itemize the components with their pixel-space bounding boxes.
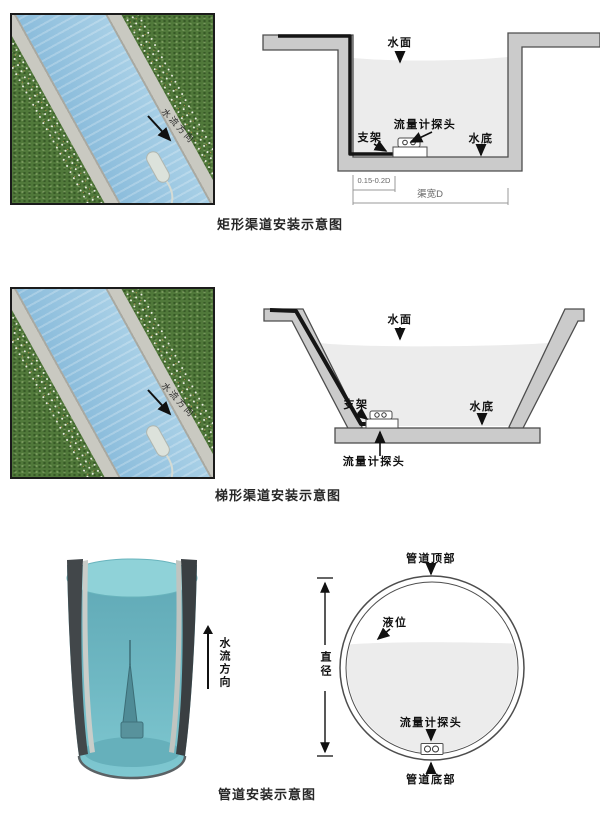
sensor-in-water bbox=[144, 149, 172, 203]
caption-pipe: 管道安装示意图 bbox=[218, 784, 316, 803]
diagram-pipe-section: 管道顶部 液位 流量计探头 管道底部 bbox=[300, 545, 560, 790]
diameter-label: 直径 bbox=[317, 651, 333, 679]
diagram-trap-channel: 水面 支架 水底 流量计探头 bbox=[258, 295, 600, 475]
page: 水流方向 0.15-0.2D 渠宽D 水面 流量计探头 bbox=[0, 0, 600, 819]
pipe-bottom-label: 管道底部 bbox=[406, 772, 456, 786]
caption-trap-channel: 梯形渠道安装示意图 bbox=[215, 485, 341, 504]
flow-direction-label: 水流方向 bbox=[160, 106, 198, 146]
sensor-in-water bbox=[144, 423, 172, 477]
flow-direction-label: 水流方向 bbox=[216, 637, 232, 689]
flow-direction-arrow bbox=[207, 629, 209, 689]
photo-rect-channel: 水流方向 bbox=[10, 13, 215, 205]
probe-label: 流量计探头 bbox=[400, 715, 463, 729]
water-bottom-label: 水底 bbox=[470, 399, 495, 413]
photo-annotations: 水流方向 bbox=[12, 289, 213, 477]
probe-assembly bbox=[421, 744, 443, 755]
photo-annotations: 水流方向 bbox=[12, 15, 213, 203]
bracket-label: 支架 bbox=[343, 397, 369, 411]
diagram-rect-channel: 0.15-0.2D 渠宽D 水面 流量计探头 支架 水底 bbox=[258, 25, 600, 210]
pipe-floor bbox=[84, 737, 180, 767]
pipe-top-label: 管道顶部 bbox=[406, 551, 456, 565]
water-area bbox=[340, 642, 524, 757]
flow-direction-label: 水流方向 bbox=[160, 380, 198, 420]
water-surface-label: 水面 bbox=[388, 35, 413, 49]
caption-rect-channel: 矩形渠道安装示意图 bbox=[217, 214, 343, 233]
photo-trap-channel: 水流方向 bbox=[10, 287, 215, 479]
water-surface-label: 水面 bbox=[388, 312, 413, 326]
water-bottom-label: 水底 bbox=[469, 131, 494, 145]
photo-pipe-3d: 水流方向 bbox=[40, 545, 250, 790]
offset-dimension-label: 0.15-0.2D bbox=[358, 176, 392, 185]
probe-label: 流量计探头 bbox=[394, 117, 457, 131]
pipe-render bbox=[40, 545, 200, 790]
width-dimension-label: 渠宽D bbox=[417, 188, 443, 200]
level-label: 液位 bbox=[383, 615, 408, 629]
bracket-label: 支架 bbox=[357, 130, 383, 144]
floor-slab bbox=[335, 428, 540, 443]
probe-label: 流量计探头 bbox=[343, 454, 406, 468]
